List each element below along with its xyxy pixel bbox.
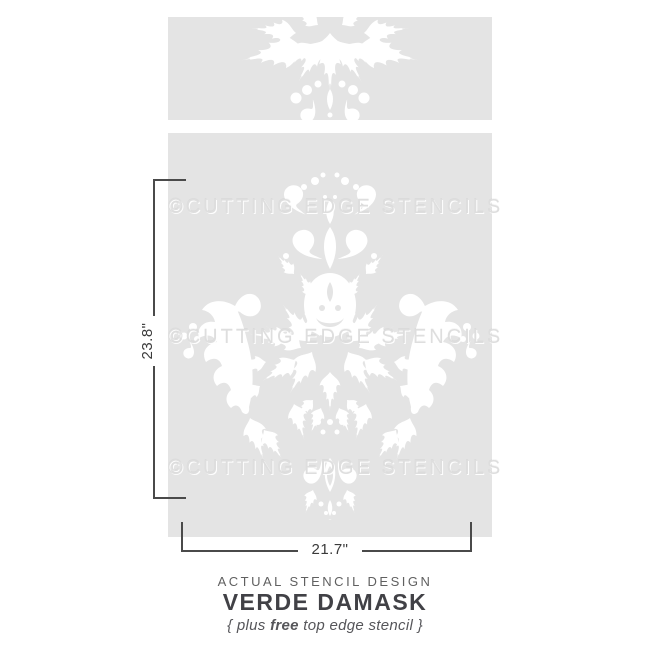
- note-open: { plus: [227, 617, 270, 634]
- top-border-ornament: [234, 17, 425, 120]
- width-dimension-line-left: [182, 550, 298, 552]
- top-edge-stencil-pattern: [168, 17, 492, 120]
- product-title: VERDE DAMASK: [0, 590, 650, 614]
- width-dimension-tick-right: [470, 522, 472, 552]
- top-edge-stencil: [168, 17, 492, 120]
- note-close: top edge stencil }: [299, 617, 423, 634]
- product-image: ©CUTTING EDGE STENCILS ©CUTTING EDGE STE…: [0, 0, 650, 650]
- note-free: free: [270, 617, 299, 634]
- height-dimension-tick-top: [153, 179, 186, 181]
- watermark-row: ©CUTTING EDGE STENCILS: [168, 458, 492, 478]
- height-dimension-label: 23.8": [138, 319, 158, 363]
- height-dimension-line-lower: [153, 366, 155, 499]
- main-stencil: ©CUTTING EDGE STENCILS ©CUTTING EDGE STE…: [168, 133, 492, 537]
- width-dimension-label: 21.7": [298, 541, 362, 559]
- product-note: { plus free top edge stencil }: [0, 617, 650, 634]
- watermark-row: ©CUTTING EDGE STENCILS: [168, 197, 492, 217]
- width-dimension-line-right: [362, 550, 471, 552]
- watermark-row: ©CUTTING EDGE STENCILS: [168, 327, 492, 347]
- height-dimension-tick-bottom: [153, 497, 186, 499]
- product-tagline: ACTUAL STENCIL DESIGN: [0, 574, 650, 590]
- height-dimension-line-upper: [153, 180, 155, 316]
- width-dimension-tick-left: [181, 522, 183, 552]
